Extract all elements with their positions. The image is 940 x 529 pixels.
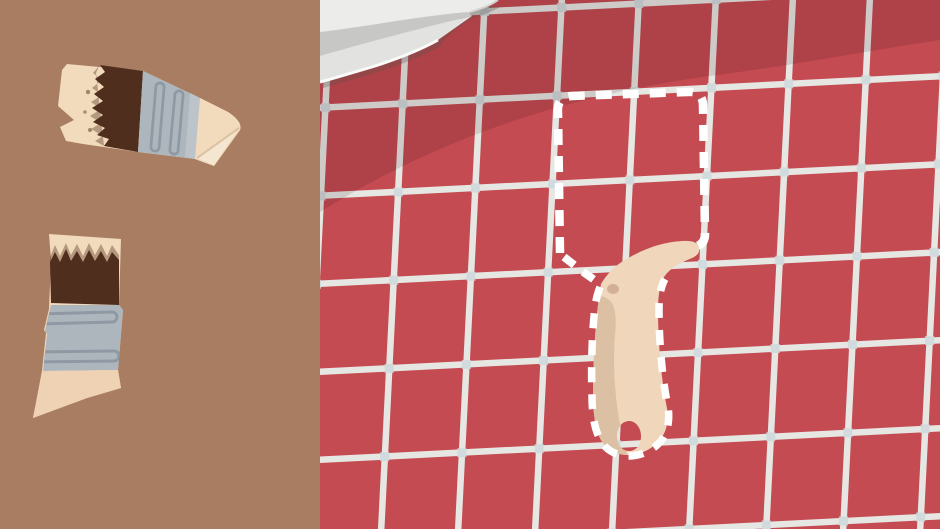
grout-intersection-dot: [780, 168, 789, 177]
grout-intersection-dot: [471, 183, 480, 192]
grout-intersection-dot: [685, 524, 694, 529]
grout-intersection-dot: [934, 160, 940, 169]
grout-intersection-dot: [394, 187, 403, 196]
grout-intersection-dot: [389, 276, 398, 285]
grout-intersection-dot: [385, 364, 394, 373]
grout-intersection-dot: [848, 340, 857, 349]
grout-intersection-dot: [766, 432, 775, 441]
grout-intersection-dot: [539, 356, 548, 365]
workbench-panel: [0, 0, 320, 529]
grout-intersection-dot: [380, 452, 389, 461]
grout-intersection-dot: [930, 248, 939, 257]
paint-speck: [83, 110, 87, 114]
grout-intersection-dot: [625, 176, 634, 185]
grout-intersection-dot: [861, 75, 870, 84]
game-scene: [0, 0, 940, 529]
grout-intersection-dot: [921, 424, 930, 433]
grout-intersection-dot: [707, 83, 716, 92]
grout-intersection-dot: [916, 513, 925, 522]
grout-intersection-dot: [535, 444, 544, 453]
grout-intersection-dot: [925, 336, 934, 345]
grout-intersection-dot: [457, 448, 466, 457]
paint-speck: [88, 128, 92, 132]
grout-intersection-dot: [857, 164, 866, 173]
grout-intersection-dot: [320, 280, 321, 289]
grout-intersection-dot: [462, 360, 471, 369]
grout-intersection-dot: [775, 256, 784, 265]
paint-speck: [86, 90, 90, 94]
grout-intersection-dot: [784, 79, 793, 88]
grout-intersection-dot: [771, 344, 780, 353]
grout-intersection-dot: [544, 268, 553, 277]
grout-intersection-dot: [689, 436, 698, 445]
ferrule-crimp-inner: [38, 317, 112, 319]
ferrule-crimp-inner: [36, 356, 114, 357]
grout-intersection-dot: [852, 252, 861, 261]
grout-intersection-dot: [466, 272, 475, 281]
grout-intersection-dot: [762, 520, 771, 529]
grout-intersection-dot: [694, 348, 703, 357]
grout-intersection-dot: [698, 260, 707, 269]
handle-blemish: [607, 284, 619, 294]
grout-intersection-dot: [839, 516, 848, 525]
grout-intersection-dot: [843, 428, 852, 437]
tile-wall-panel: [320, 0, 940, 529]
